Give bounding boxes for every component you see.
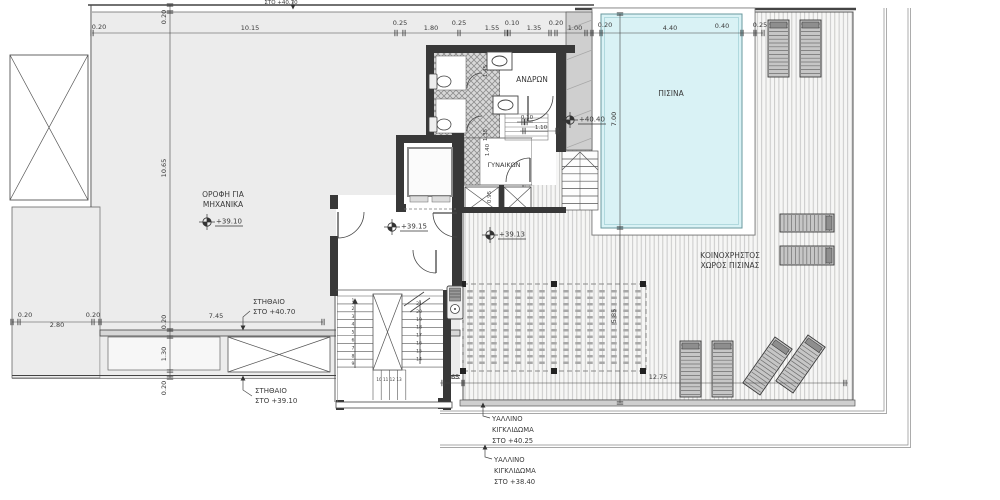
stair-number: 20 [416,309,422,315]
plan-label: 0.20 [598,21,612,29]
plan-label: ΣΤΟ +40.70 [253,308,295,316]
plan-label: 5.85 [610,309,618,323]
pergola-post [640,281,646,287]
plan-label: 1.35 [527,24,541,32]
sun-lounger [768,20,789,77]
stair-number: 2 [352,306,355,312]
sun-lounger [780,214,834,232]
stair-number: 19 [416,317,422,323]
stair-number: 4 [352,322,355,328]
plan-label: 0.20 [549,19,563,27]
plan-label: 0.20 [86,311,100,319]
plan-label: 0.25 [393,19,407,27]
plan-label: 4.40 [663,24,677,32]
plan-label: 1.55 [485,24,499,32]
plan-label: ΚΟΙΝΟΧΡΗΣΤΟΣ [700,251,760,260]
plan-label: 0.10 [521,115,534,121]
pergola-post [640,368,646,374]
plan-label: 0.20 [18,311,32,319]
plan-label: 0.25 [452,19,466,27]
plan-label: 0.65 [445,373,459,381]
plan-label: 0.20 [92,23,106,31]
sink-2 [493,96,518,114]
sink-1 [487,52,512,70]
plan-label: ΠΙΣΙΝΑ [658,89,684,98]
stair-number: 16 [416,341,422,347]
stair-number: 8 [352,353,355,359]
plan-label: ΧΩΡΟΣ ΠΙΣΙΝΑΣ [701,261,760,270]
stair-number: 5 [352,330,355,336]
outdoor-sink-unit [447,286,463,319]
stair-number: 7 [352,345,355,351]
plan-label: ΜΗΧΑΝΙΚΑ [203,200,244,209]
pergola-post [460,368,466,374]
plan-label: ΟΡΟΦΗ ΓΙΑ [202,190,245,199]
level-label: +40.40 [579,116,605,124]
plan-label: 1.80 [424,24,438,32]
plan-label: ΣΤΟ +40.25 [492,437,533,445]
stair-number: 3 [352,314,355,320]
floor-plan-page: Roof / pool deck floor plan (+39.10 – +4… [0,0,1000,500]
level-label: +39.13 [499,231,525,239]
plan-label: 1.30 [160,347,168,361]
plan-label: 12.75 [649,373,668,381]
sun-lounger [712,341,733,397]
plan-label: 7.00 [610,112,618,126]
stair-number: 18 [416,325,422,331]
sun-lounger [680,341,701,397]
pool-steps [562,151,598,210]
plan-label: ΥΑΛΛΙΝΟ [493,456,525,464]
plan-label: ΑΝΔΡΩΝ [516,75,548,84]
plan-label: 0.10 [505,19,519,27]
plan-label: 1.35 [483,128,489,141]
stair-number: 14 [416,356,422,362]
plan-label: ΥΑΛΛΙΝΟ [491,415,523,423]
plan-label: ΣΤΗΘΑΙΟ [255,387,287,395]
stair-number: 15 [416,348,422,354]
plan-label: 1.10 [535,125,548,131]
plan-label: ΓΥΝΑΙΚΩΝ [488,161,521,169]
stair-number: 21 [416,301,422,307]
plan-label: ΣΤΟ +39.10 [255,397,297,405]
plan-label: 1.40 [485,143,491,156]
pergola-post [551,368,557,374]
plan-label: ΚΙΓΚΛΙΔΩΜΑ [494,467,536,475]
plan-label: 10 11 12 13 [376,377,402,382]
plan-label: ΣΤΟ +40.70 [264,0,298,6]
architectural-floor-plan: +39.10+39.15+39.13+40.40 123456789212019… [0,0,1000,500]
plan-label: 0.25 [753,21,767,29]
plan-label: ΚΙΓΚΛΙΔΩΜΑ [492,426,534,434]
plan-label: 10.65 [160,159,168,178]
plan-label: 0.95 [487,190,493,203]
stair-number: 9 [352,361,355,367]
deck-south-edge [460,400,855,406]
skylight-void [10,55,88,200]
plan-label: 7.45 [209,312,223,320]
plan-label: 1.00 [568,24,582,32]
plan-label: 0.40 [715,22,729,30]
plan-label: 1.45 [483,64,489,77]
stair-number: 6 [352,338,355,344]
plan-label: ΣΤΗΘΑΙΟ [253,298,285,306]
plan-label: 0.20 [160,10,168,24]
stair-number: 17 [416,333,422,339]
plan-label: 2.80 [50,321,64,329]
pergola-post [551,281,557,287]
level-label: +39.10 [216,218,242,226]
sun-lounger [800,20,821,77]
stair-number: 1 [352,298,355,304]
plan-label: 10.15 [241,24,260,32]
sun-lounger [780,246,834,265]
plan-label: ΣΤΟ +38.40 [494,478,535,486]
plan-label: 0.20 [160,381,168,395]
plan-label: 0.20 [160,315,168,329]
level-label: +39.15 [401,223,427,231]
